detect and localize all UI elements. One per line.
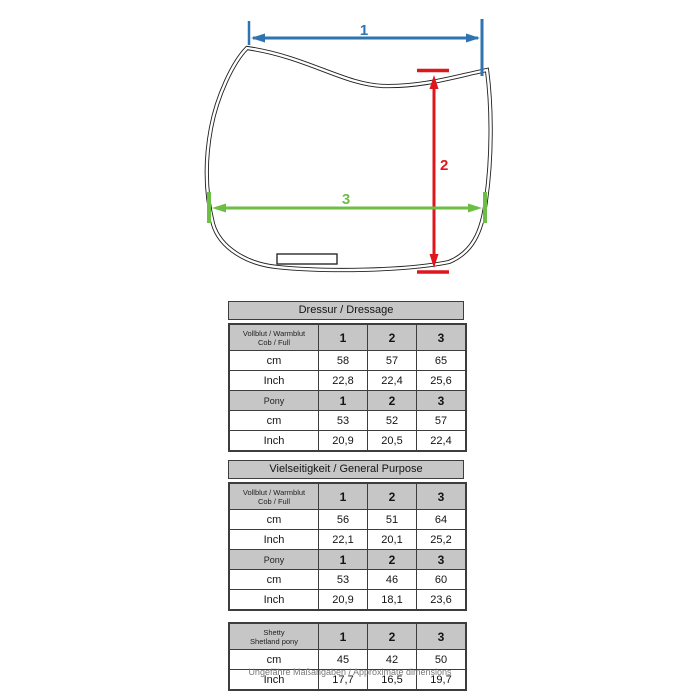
size-group-line1: Vollblut / Warmblut <box>243 329 305 338</box>
size-group-line2: Shetland pony <box>250 637 298 646</box>
col-measure-3: 3 <box>417 550 467 570</box>
value-cell: 52 <box>368 411 417 431</box>
unit-label: Inch <box>229 590 319 611</box>
size-group-line1: Vollblut / Warmblut <box>243 488 305 497</box>
table-row: Shetty Shetland pony 1 2 3 <box>229 623 466 650</box>
col-measure-3: 3 <box>417 391 467 411</box>
value-cell: 20,1 <box>368 530 417 550</box>
col-measure-2: 2 <box>368 623 417 650</box>
col-measure-2: 2 <box>368 324 417 351</box>
value-cell: 23,6 <box>417 590 467 611</box>
value-cell: 22,4 <box>368 371 417 391</box>
unit-label: cm <box>229 351 319 371</box>
value-cell: 22,4 <box>417 431 467 452</box>
value-cell: 18,1 <box>368 590 417 611</box>
unit-label: cm <box>229 570 319 590</box>
value-cell: 56 <box>319 510 368 530</box>
value-cell: 22,8 <box>319 371 368 391</box>
value-cell: 57 <box>417 411 467 431</box>
dimensions-note: Ungefähre Maßangaben / Approximate dimen… <box>0 667 700 677</box>
dressage-grid: Vollblut / Warmblut Cob / Full 1 2 3 cm … <box>228 323 467 452</box>
measure-1-label: 1 <box>360 22 368 39</box>
size-group-line1: Shetty <box>263 628 284 637</box>
table-row: cm 58 57 65 <box>229 351 466 371</box>
table-row: cm 53 52 57 <box>229 411 466 431</box>
table-row: Vollblut / Warmblut Cob / Full 1 2 3 <box>229 483 466 510</box>
value-cell: 60 <box>417 570 467 590</box>
pony-group-label: Pony <box>229 391 319 411</box>
value-cell: 25,2 <box>417 530 467 550</box>
value-cell: 20,9 <box>319 431 368 452</box>
size-group-line2: Cob / Full <box>258 497 290 506</box>
table-row: Inch 22,1 20,1 25,2 <box>229 530 466 550</box>
size-tables: Dressur / Dressage Vollblut / Warmblut C… <box>228 301 464 691</box>
table-row: Vollblut / Warmblut Cob / Full 1 2 3 <box>229 324 466 351</box>
general-purpose-table-title: Vielseitigkeit / General Purpose <box>228 460 464 479</box>
table-row: Pony 1 2 3 <box>229 391 466 411</box>
shetty-grid: Shetty Shetland pony 1 2 3 cm 45 42 50 I… <box>228 622 467 691</box>
measure-3-label: 3 <box>342 191 350 208</box>
measure-1-arrowhead-left <box>251 34 265 43</box>
pony-group-label: Pony <box>229 550 319 570</box>
col-measure-1: 1 <box>319 483 368 510</box>
size-group-label: Vollblut / Warmblut Cob / Full <box>229 324 319 351</box>
table-row: cm 56 51 64 <box>229 510 466 530</box>
table-row: Pony 1 2 3 <box>229 550 466 570</box>
col-measure-3: 3 <box>417 324 467 351</box>
general-purpose-grid: Vollblut / Warmblut Cob / Full 1 2 3 cm … <box>228 482 467 611</box>
saddle-pad-diagram: 1 2 3 <box>0 0 700 298</box>
value-cell: 58 <box>319 351 368 371</box>
col-measure-1: 1 <box>319 623 368 650</box>
col-measure-1: 1 <box>319 391 368 411</box>
table-row: cm 53 46 60 <box>229 570 466 590</box>
shetty-table: Shetty Shetland pony 1 2 3 cm 45 42 50 I… <box>228 622 464 691</box>
col-measure-3: 3 <box>417 483 467 510</box>
col-measure-2: 2 <box>368 550 417 570</box>
value-cell: 53 <box>319 411 368 431</box>
unit-label: cm <box>229 510 319 530</box>
col-measure-1: 1 <box>319 550 368 570</box>
size-group-label: Shetty Shetland pony <box>229 623 319 650</box>
col-measure-1: 1 <box>319 324 368 351</box>
col-measure-2: 2 <box>368 483 417 510</box>
value-cell: 51 <box>368 510 417 530</box>
unit-label: Inch <box>229 371 319 391</box>
unit-label: Inch <box>229 530 319 550</box>
unit-label: Inch <box>229 431 319 452</box>
size-group-line2: Cob / Full <box>258 338 290 347</box>
value-cell: 20,5 <box>368 431 417 452</box>
col-measure-3: 3 <box>417 623 467 650</box>
measure-1-arrowhead-right <box>466 34 480 43</box>
general-purpose-table: Vielseitigkeit / General Purpose Vollblu… <box>228 460 464 611</box>
table-row: Inch 20,9 18,1 23,6 <box>229 590 466 611</box>
table-row: Inch 20,9 20,5 22,4 <box>229 431 466 452</box>
measure-2-label: 2 <box>440 157 448 174</box>
value-cell: 22,1 <box>319 530 368 550</box>
pad-label-tag <box>277 254 337 264</box>
value-cell: 64 <box>417 510 467 530</box>
value-cell: 20,9 <box>319 590 368 611</box>
dressage-table: Dressur / Dressage Vollblut / Warmblut C… <box>228 301 464 452</box>
table-row: Inch 22,8 22,4 25,6 <box>229 371 466 391</box>
value-cell: 57 <box>368 351 417 371</box>
value-cell: 46 <box>368 570 417 590</box>
col-measure-2: 2 <box>368 391 417 411</box>
value-cell: 53 <box>319 570 368 590</box>
dressage-table-title: Dressur / Dressage <box>228 301 464 320</box>
size-group-label: Vollblut / Warmblut Cob / Full <box>229 483 319 510</box>
value-cell: 25,6 <box>417 371 467 391</box>
unit-label: cm <box>229 411 319 431</box>
value-cell: 65 <box>417 351 467 371</box>
